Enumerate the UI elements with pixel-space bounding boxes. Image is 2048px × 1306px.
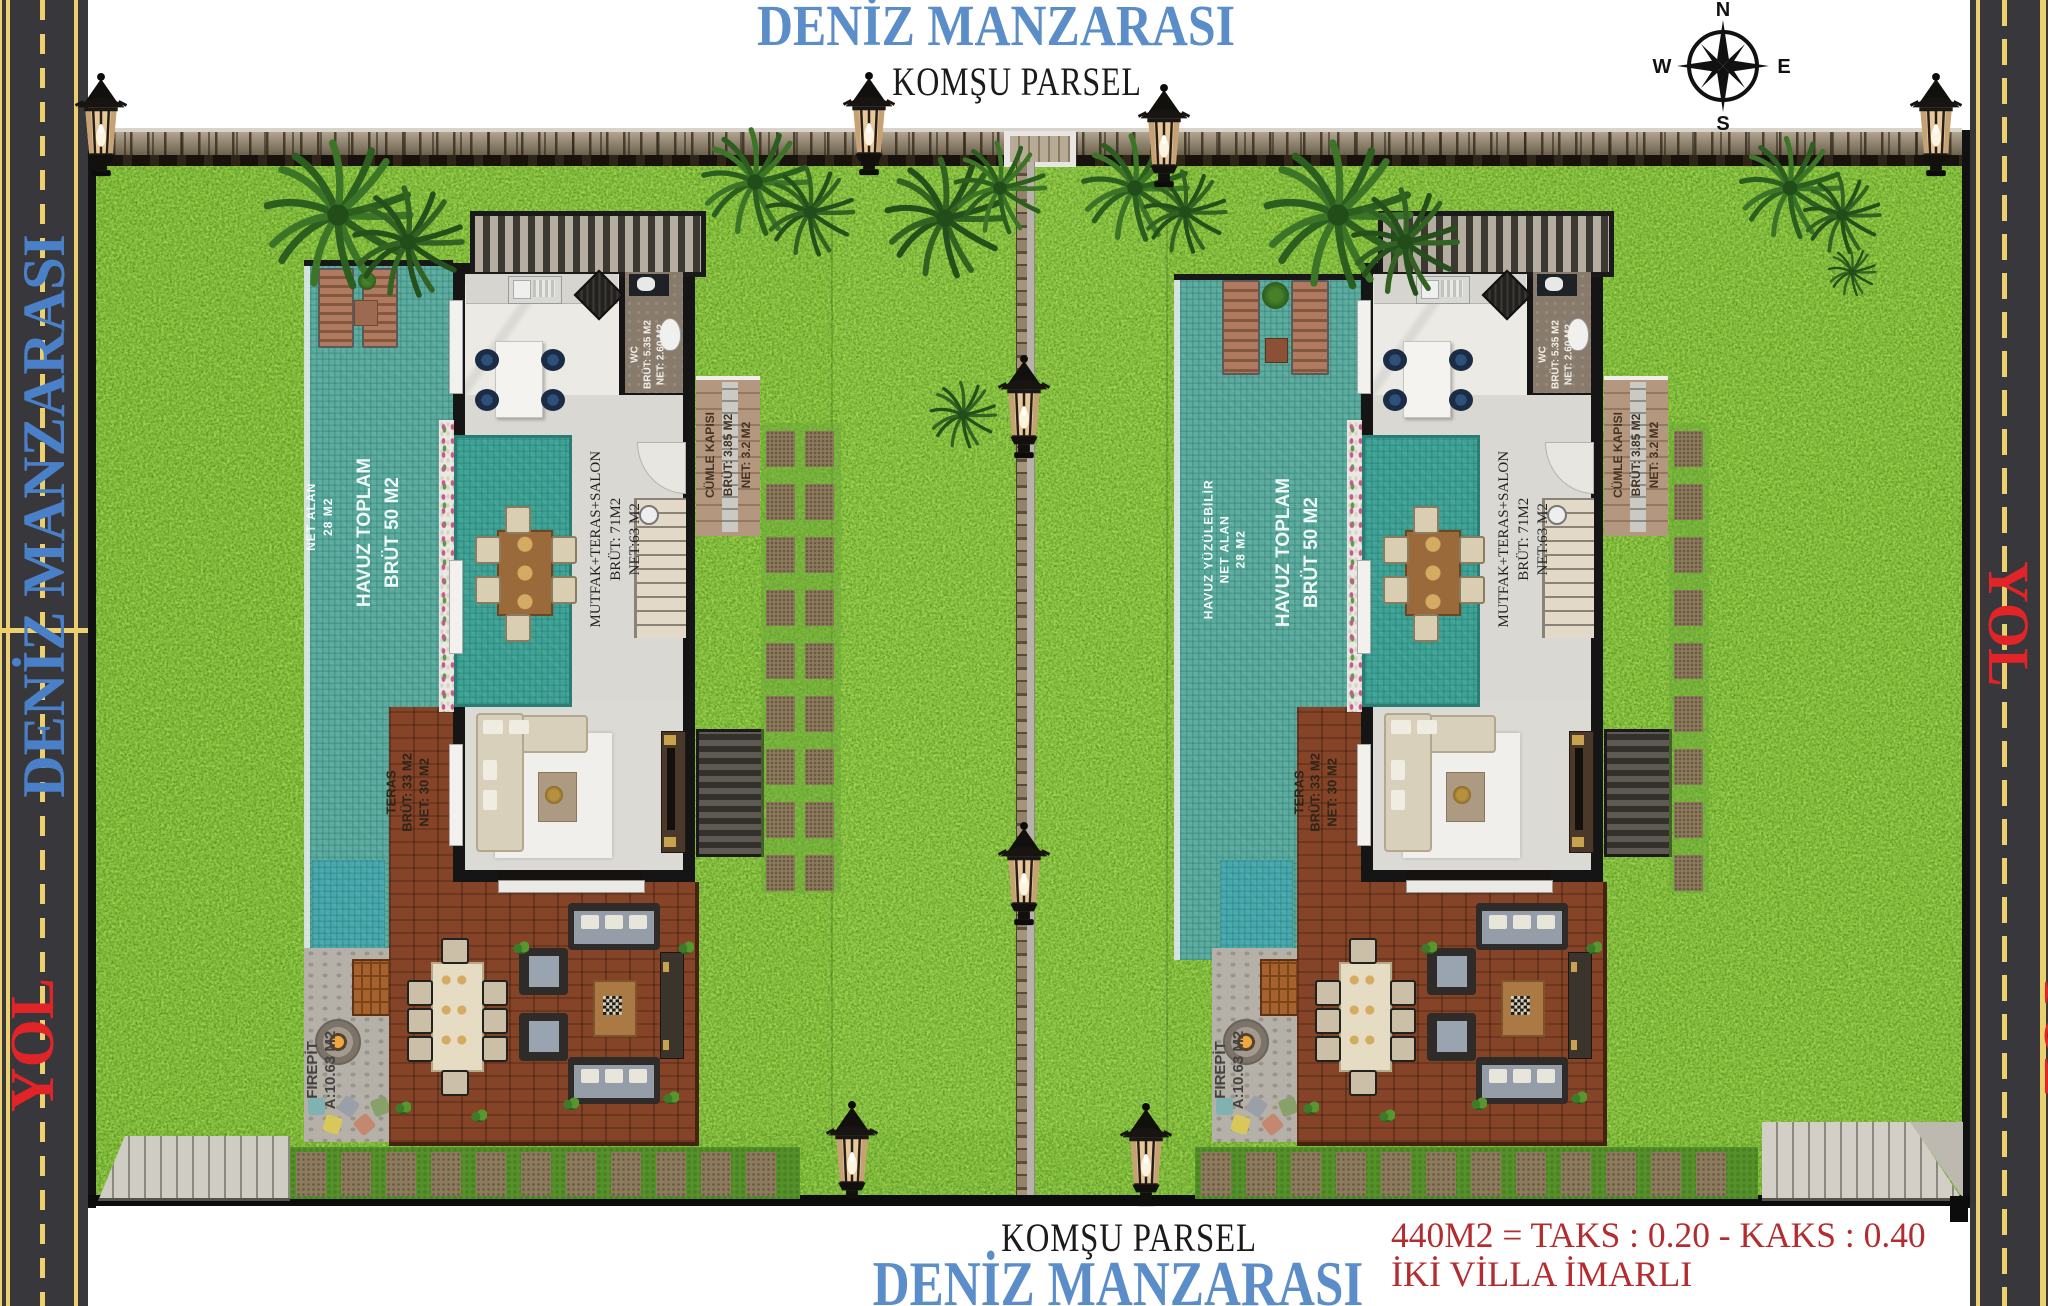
svg-text:W: W [1653,56,1672,78]
svg-text:E: E [1777,56,1790,78]
svg-text:N: N [1716,2,1730,21]
svg-text:S: S [1716,113,1729,132]
